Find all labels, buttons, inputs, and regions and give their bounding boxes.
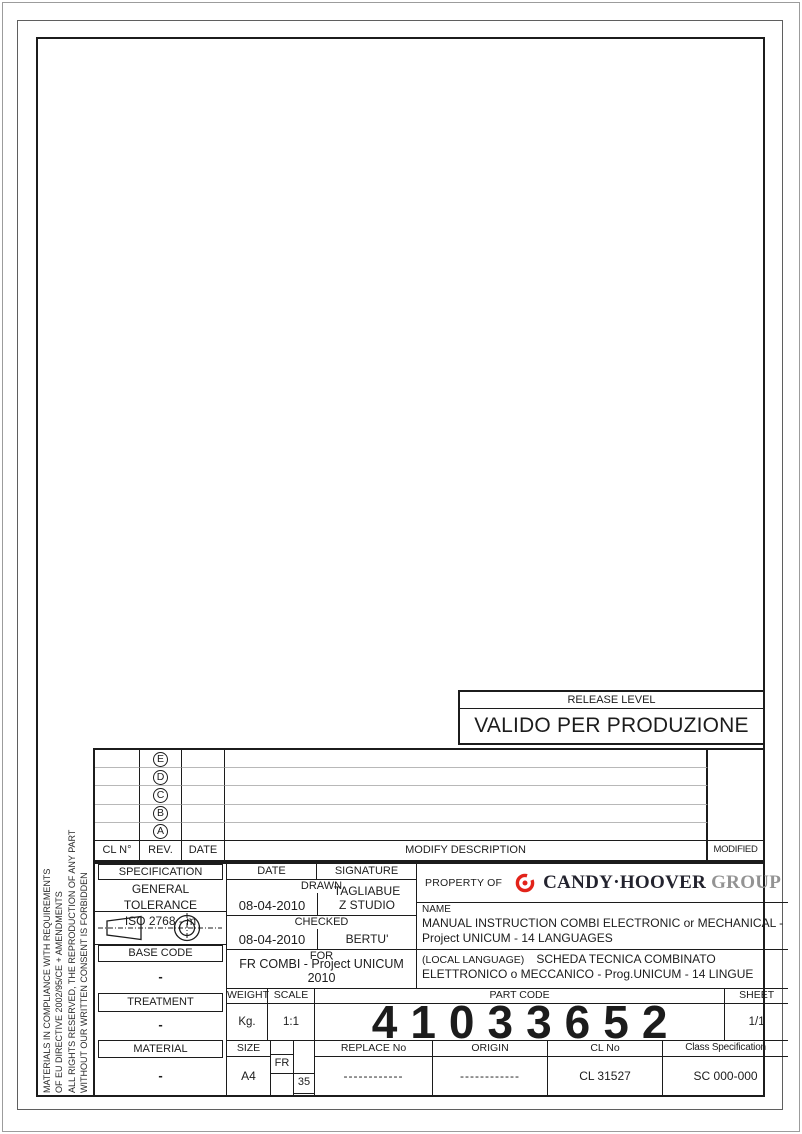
format-label: FR bbox=[271, 1057, 293, 1069]
title-block: SPECIFICATION GENERAL TOLERANCE ISO 2768… bbox=[93, 862, 765, 1097]
format-value: 35 bbox=[293, 1076, 315, 1088]
revision-description-cell bbox=[225, 768, 708, 786]
class-specification-header: Class Specification bbox=[663, 1041, 788, 1057]
local-line2: ELETTRONICO o MECCANICO - Prog.UNICUM - … bbox=[422, 967, 783, 982]
revision-modifiedby-cell bbox=[708, 750, 763, 768]
revision-description-cell bbox=[225, 786, 708, 804]
sheet-value: 1/1 bbox=[725, 1004, 788, 1040]
revision-rev-cell: B bbox=[140, 805, 182, 823]
cell-divider bbox=[293, 1093, 315, 1094]
drawn-signature-line1: TAGLIABUE bbox=[318, 884, 416, 898]
specification-header: SPECIFICATION bbox=[98, 864, 223, 880]
cl-no-cell: CL No CL 31527 bbox=[548, 1041, 663, 1095]
signoff-signature-header: SIGNATURE bbox=[317, 864, 416, 879]
revision-row: E bbox=[95, 750, 763, 768]
revision-row: C bbox=[95, 786, 763, 804]
treatment-value: - bbox=[95, 1012, 226, 1040]
revision-marker: B bbox=[153, 806, 168, 821]
title-block-right: DATE SIGNATURE DRAWN 08-04-2010 TAGLIABU… bbox=[227, 864, 788, 1095]
sheet-header: SHEET bbox=[725, 989, 788, 1004]
drawing-sheet: MATERIALS IN COMPLIANCE WITH REQUIREMENT… bbox=[0, 0, 802, 1134]
revision-marker: D bbox=[153, 770, 168, 785]
release-level-box: RELEASE LEVEL VALIDO PER PRODUZIONE bbox=[458, 690, 765, 745]
revision-header-row: CL N° REV. DATE MODIFY DESCRIPTION MODIF… bbox=[95, 841, 763, 860]
rights-line: WITHOUT OUR WRITTEN CONSENT IS FORBIDDEN bbox=[79, 843, 91, 1093]
checked-label: CHECKED bbox=[227, 916, 416, 929]
for-row: FOR FR COMBI - Project UNICUM 2010 bbox=[227, 950, 416, 988]
cl-no-header: CL No bbox=[548, 1041, 662, 1057]
cell-divider bbox=[271, 1054, 293, 1055]
local-language-label: (LOCAL LANGUAGE) bbox=[422, 954, 524, 966]
revision-cl-cell bbox=[95, 750, 140, 768]
part-code-value: 41033652 bbox=[372, 1004, 681, 1040]
origin-cell: ORIGIN ------------ bbox=[433, 1041, 548, 1095]
revision-description-cell bbox=[225, 805, 708, 823]
revision-table: E D C B A bbox=[93, 748, 765, 862]
revision-rev-cell: D bbox=[140, 768, 182, 786]
signoff-column: DATE SIGNATURE DRAWN 08-04-2010 TAGLIABU… bbox=[227, 864, 417, 988]
weight-scale-partcode-row: WEIGHT Kg. SCALE 1:1 PART CODE 41033652 … bbox=[227, 988, 788, 1040]
signoff-date-header: DATE bbox=[227, 864, 317, 879]
signoff-header-row: DATE SIGNATURE bbox=[227, 864, 416, 880]
drawn-date: 08-04-2010 bbox=[227, 898, 317, 913]
revision-marker: A bbox=[153, 824, 168, 839]
origin-value: ------------ bbox=[433, 1057, 547, 1095]
property-of-label: PROPERTY OF bbox=[425, 877, 502, 889]
local-language-row: (LOCAL LANGUAGE) SCHEDA TECNICA COMBINAT… bbox=[417, 950, 788, 988]
revision-cl-cell bbox=[95, 786, 140, 804]
size-header: SIZE bbox=[227, 1041, 270, 1057]
identity-column: PROPERTY OF CANDY·HOOVERGROUP NAME MANUA… bbox=[417, 864, 788, 988]
revision-marker: C bbox=[153, 788, 168, 803]
scale-value: 1:1 bbox=[268, 1004, 314, 1040]
drawn-signature-line2: Z STUDIO bbox=[318, 898, 416, 912]
weight-cell: WEIGHT Kg. bbox=[227, 989, 268, 1040]
revision-modifiedby-cell bbox=[708, 823, 763, 841]
cl-no-value: CL 31527 bbox=[548, 1057, 662, 1095]
revision-row: D bbox=[95, 768, 763, 786]
name-label: NAME bbox=[422, 904, 783, 916]
sheet-cell: SHEET 1/1 bbox=[725, 989, 788, 1040]
drawn-signature: TAGLIABUE Z STUDIO bbox=[318, 884, 416, 912]
revision-date-cell bbox=[182, 750, 225, 768]
name-line2: Project UNICUM - 14 LANGUAGES bbox=[422, 931, 783, 946]
general-tolerance-label: GENERAL TOLERANCE bbox=[95, 881, 226, 913]
local-line1: SCHEDA TECNICA COMBINATO bbox=[536, 952, 715, 967]
base-code-value: - bbox=[95, 962, 226, 993]
size-value: A4 bbox=[227, 1057, 270, 1095]
compliance-line: OF EU DIRECTIVE 2002/95/CE + AMENDMENTS bbox=[54, 843, 66, 1093]
rights-line: ALL RIGHTS RESERVED, THE REPRODUCTION OF… bbox=[67, 843, 79, 1093]
scale-cell: SCALE 1:1 bbox=[268, 989, 315, 1040]
checked-signature: BERTU' bbox=[318, 932, 416, 946]
property-row: PROPERTY OF CANDY·HOOVERGROUP bbox=[417, 864, 788, 903]
class-specification-cell: Class Specification SC 000-000 bbox=[663, 1041, 788, 1095]
candy-hoover-logo-icon bbox=[514, 872, 536, 894]
checked-date: 08-04-2010 bbox=[227, 932, 317, 947]
cell-divider bbox=[271, 1073, 314, 1074]
brand-suffix: GROUP bbox=[711, 872, 781, 893]
revision-cl-cell bbox=[95, 823, 140, 841]
replace-no-cell: REPLACE No ------------ bbox=[315, 1041, 433, 1095]
rev-header: REV. bbox=[140, 841, 182, 860]
weight-header: WEIGHT bbox=[227, 989, 267, 1004]
revision-date-cell bbox=[182, 805, 225, 823]
name-line1: MANUAL INSTRUCTION COMBI ELECTRONIC or M… bbox=[422, 916, 783, 931]
modified-by-header: MODIFIED BY bbox=[708, 841, 763, 860]
scale-header: SCALE bbox=[268, 989, 314, 1004]
date-header: DATE bbox=[182, 841, 225, 860]
class-specification-value: SC 000-000 bbox=[663, 1057, 788, 1095]
checked-row: CHECKED 08-04-2010 BERTU' bbox=[227, 916, 416, 950]
specification-column: SPECIFICATION GENERAL TOLERANCE ISO 2768… bbox=[95, 864, 227, 1095]
revision-modifiedby-cell bbox=[708, 805, 763, 823]
general-tolerance-cell: GENERAL TOLERANCE ISO 2768 - m bbox=[95, 880, 226, 912]
release-level-label: RELEASE LEVEL bbox=[460, 692, 763, 709]
revision-description-cell bbox=[225, 823, 708, 841]
revision-row: B bbox=[95, 805, 763, 823]
treatment-header: TREATMENT bbox=[98, 993, 223, 1012]
base-code-header: BASE CODE bbox=[98, 945, 223, 962]
revision-description-cell bbox=[225, 750, 708, 768]
brand-main: CANDY·HOOVER bbox=[543, 872, 706, 893]
cl-no-header: CL N° bbox=[95, 841, 140, 860]
revision-marker: E bbox=[153, 752, 168, 767]
modify-description-header: MODIFY DESCRIPTION bbox=[225, 841, 708, 860]
revision-row: A bbox=[95, 823, 763, 841]
revision-rev-cell: A bbox=[140, 823, 182, 841]
revision-modifiedby-cell bbox=[708, 786, 763, 804]
projection-symbol-cell bbox=[95, 912, 226, 945]
size-origin-row: SIZE A4 FR 35 REPLACE No ------------ OR… bbox=[227, 1040, 788, 1095]
weight-value: Kg. bbox=[227, 1004, 267, 1040]
compliance-note: MATERIALS IN COMPLIANCE WITH REQUIREMENT… bbox=[42, 843, 90, 1093]
format-cell: FR 35 bbox=[271, 1041, 315, 1095]
replace-no-header: REPLACE No bbox=[315, 1041, 432, 1057]
revision-date-cell bbox=[182, 786, 225, 804]
size-cell: SIZE A4 bbox=[227, 1041, 271, 1095]
material-value: - bbox=[95, 1058, 226, 1095]
revision-date-cell bbox=[182, 823, 225, 841]
for-value: FR COMBI - Project UNICUM 2010 bbox=[227, 957, 416, 985]
part-code-cell: PART CODE 41033652 bbox=[315, 989, 725, 1040]
replace-no-value: ------------ bbox=[315, 1057, 432, 1095]
origin-header: ORIGIN bbox=[433, 1041, 547, 1057]
revision-rev-cell: C bbox=[140, 786, 182, 804]
revision-cl-cell bbox=[95, 768, 140, 786]
first-angle-projection-icon bbox=[95, 912, 226, 944]
release-level-value: VALIDO PER PRODUZIONE bbox=[460, 709, 763, 743]
material-header: MATERIAL bbox=[98, 1040, 223, 1058]
revision-date-cell bbox=[182, 768, 225, 786]
revision-cl-cell bbox=[95, 805, 140, 823]
brand-name: CANDY·HOOVERGROUP bbox=[543, 872, 781, 894]
title-block-upper: DATE SIGNATURE DRAWN 08-04-2010 TAGLIABU… bbox=[227, 864, 788, 988]
compliance-line: MATERIALS IN COMPLIANCE WITH REQUIREMENT… bbox=[42, 843, 54, 1093]
drawn-row: DRAWN 08-04-2010 TAGLIABUE Z STUDIO bbox=[227, 880, 416, 916]
name-row: NAME MANUAL INSTRUCTION COMBI ELECTRONIC… bbox=[417, 903, 788, 950]
revision-rev-cell: E bbox=[140, 750, 182, 768]
revision-modifiedby-cell bbox=[708, 768, 763, 786]
